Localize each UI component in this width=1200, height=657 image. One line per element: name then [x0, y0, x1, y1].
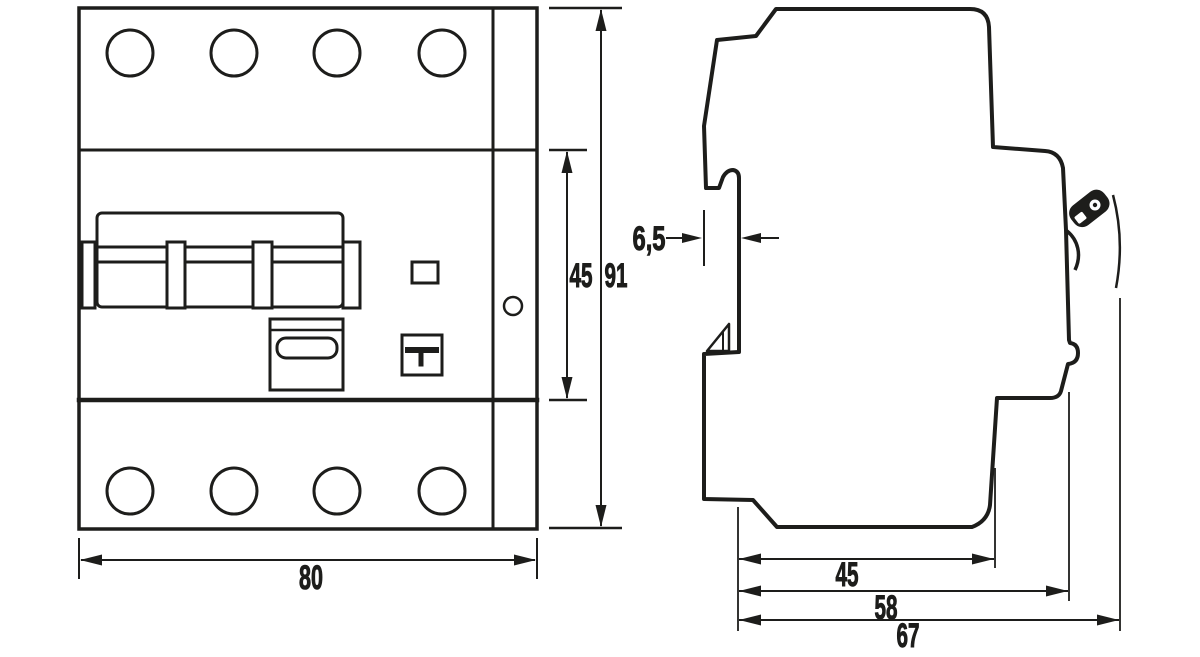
terminal-circle: [419, 30, 465, 76]
side-view: [704, 9, 1120, 527]
dim-arrow: [739, 615, 761, 626]
dim-label-total-height: 91: [605, 257, 628, 295]
dim-arrow: [741, 233, 761, 243]
dim-label-rail-recess: 6,5: [633, 220, 666, 258]
dim-arrow: [739, 586, 761, 597]
dim-arrow: [80, 555, 102, 566]
dim-label-depth-base: 45: [836, 556, 859, 594]
lever-hole-pin: [1093, 203, 1097, 207]
dim-arrow: [596, 9, 607, 31]
lever-swing-arc: [1113, 195, 1120, 288]
terminal-circle: [314, 30, 360, 76]
dim-arrow: [1046, 586, 1068, 597]
drawing-svg: 80 45 91: [0, 0, 1200, 657]
dim-label-module-height: 45: [570, 257, 593, 295]
dim-arrow: [682, 233, 702, 243]
dim-arrow: [562, 151, 573, 173]
toggle-handle: [253, 242, 272, 308]
dim-arrow: [514, 555, 536, 566]
dim-label-depth-body: 58: [875, 589, 898, 627]
front-view: [79, 8, 537, 529]
dim-arrow: [596, 505, 607, 527]
dimension-drawing: 80 45 91: [0, 0, 1200, 657]
dim-arrow: [972, 554, 994, 565]
terminal-circle: [211, 30, 257, 76]
label-window-pill: [277, 338, 337, 358]
sealing-hole: [504, 297, 522, 315]
dim-arrow: [562, 377, 573, 399]
toggle-base-plate: [97, 213, 343, 307]
terminal-circle: [211, 468, 257, 514]
toggle-handle: [167, 242, 185, 308]
toggle-handle: [343, 242, 360, 308]
terminal-circle: [107, 30, 153, 76]
device-outline: [79, 8, 537, 529]
dim-label-depth-total: 67: [897, 617, 920, 655]
terminal-circle: [107, 468, 153, 514]
side-profile-outline: [704, 9, 1078, 527]
terminal-circle: [419, 468, 465, 514]
toggle-handle: [82, 242, 95, 308]
dim-arrow: [739, 554, 761, 565]
dim-label-width: 80: [299, 559, 323, 597]
dim-arrow: [1097, 615, 1119, 626]
din-rail-clip: [707, 324, 729, 351]
terminal-circle: [314, 468, 360, 514]
indicator-window: [412, 262, 438, 283]
toggle-lever: [1065, 186, 1113, 232]
